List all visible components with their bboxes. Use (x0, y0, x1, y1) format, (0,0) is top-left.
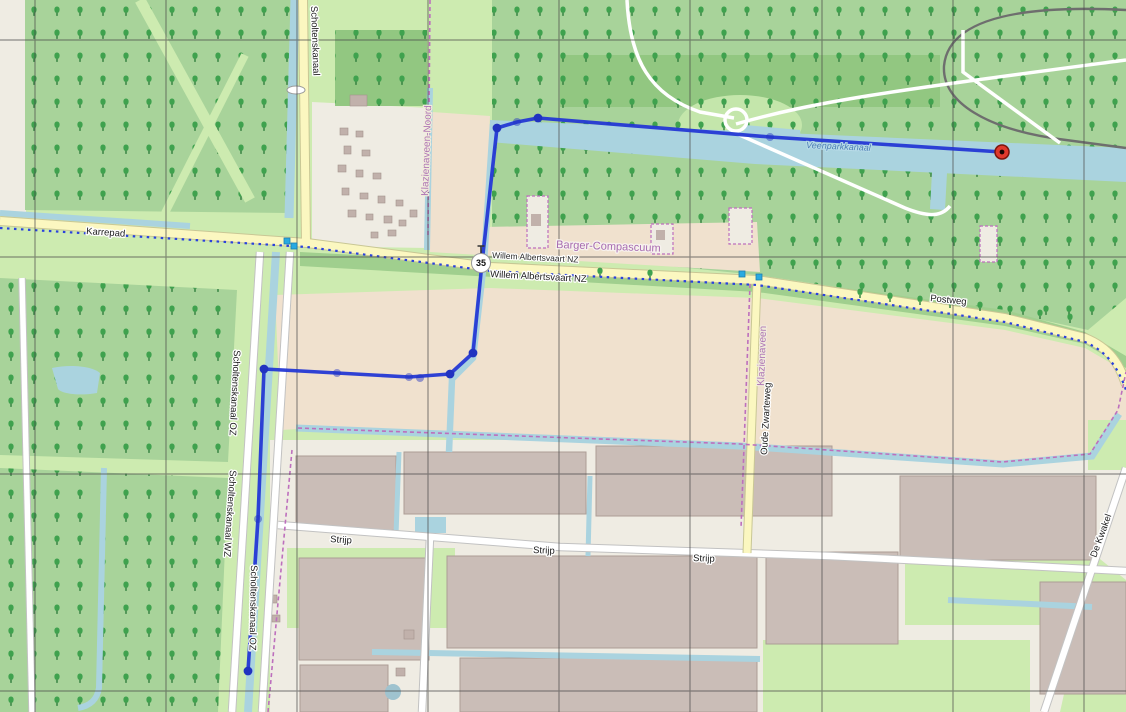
route-waypoint-faint[interactable] (416, 374, 424, 382)
route-waypoint-faint[interactable] (766, 133, 774, 141)
landuse-area (0, 0, 26, 216)
road-scholtenskanaal (303, 0, 306, 243)
round-pond (385, 684, 401, 700)
label-strijp-2: Strijp (533, 545, 555, 557)
cycle-node-number: 35 (476, 258, 486, 268)
route-end-marker[interactable] (995, 145, 1009, 159)
route-waypoint[interactable] (469, 349, 478, 358)
label-strijp-3: Strijp (693, 553, 715, 565)
route-waypoint[interactable] (446, 370, 455, 379)
water-basin (415, 517, 446, 533)
label-strijp-1: Strijp (330, 534, 352, 546)
basemap-layer (0, 0, 1126, 712)
map-viewport[interactable]: 35 Scholtenskanaal Karrepad Klazienaveen… (0, 0, 1126, 712)
route-waypoint[interactable] (244, 667, 253, 676)
route-waypoint[interactable] (493, 124, 502, 133)
map-canvas[interactable]: 35 Scholtenskanaal Karrepad Klazienaveen… (0, 0, 1126, 712)
route-edit-node[interactable] (739, 271, 745, 277)
hamlet-area (312, 102, 430, 248)
route-waypoint-faint[interactable] (405, 373, 413, 381)
bridge-icon (287, 86, 305, 94)
route-edit-node[interactable] (284, 238, 290, 244)
label-scholtenskanaal-oz-2: Scholtenskanaal OZ (247, 565, 259, 651)
plot-building (656, 230, 665, 240)
route-waypoint-faint[interactable] (333, 369, 341, 377)
route-edit-node[interactable] (756, 274, 762, 280)
route-waypoint-faint[interactable] (513, 118, 521, 126)
route-waypoint[interactable] (260, 365, 269, 374)
plot-building (531, 214, 541, 226)
label-klazienaveen: Klazienaveen (756, 326, 769, 386)
route-edit-node[interactable] (291, 243, 297, 249)
route-waypoint-faint[interactable] (254, 515, 262, 523)
route-waypoint[interactable] (534, 114, 543, 123)
